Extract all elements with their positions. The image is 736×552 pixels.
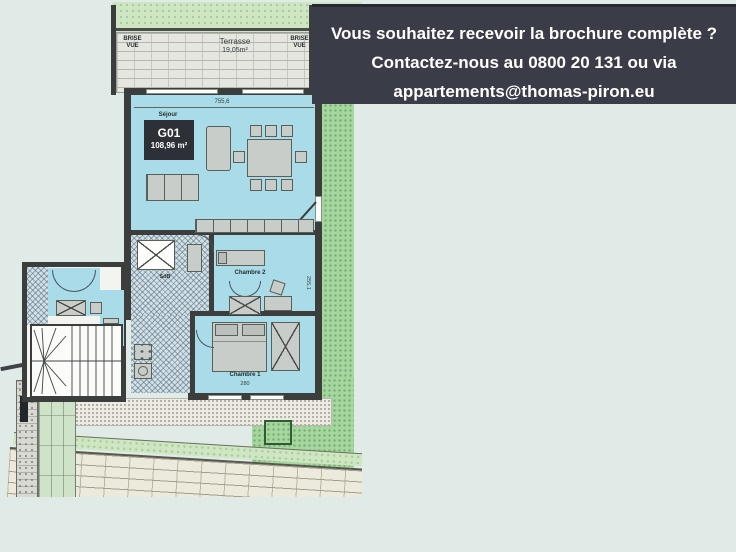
unit-label-box: G01 108,96 m² <box>144 120 194 160</box>
unit-area: 108,96 m² <box>144 140 194 151</box>
pillow-chambre2 <box>218 252 227 264</box>
unit-code: G01 <box>144 127 194 140</box>
brise-vue-post-left <box>111 5 116 95</box>
dining-chair <box>250 179 262 191</box>
sofa <box>146 174 199 201</box>
dining-chair <box>250 125 262 137</box>
site-plan: BRISE VUE BRISE VUE Terrasse 19,05m² <box>0 0 362 497</box>
wall-utility-chambre1 <box>190 311 195 393</box>
contact-banner: Vous souhaitez recevoir la brochure comp… <box>312 4 736 104</box>
banner-email: appartements@thomas-piron.eu <box>312 77 736 106</box>
wardrobe-chambre1 <box>271 322 300 371</box>
terrace-label: Terrasse <box>200 37 270 46</box>
chambre2-height-dim: 255,1 <box>305 276 311 290</box>
pillow-chambre1-right <box>242 324 265 336</box>
desk-chambre2 <box>264 296 292 311</box>
dining-chair <box>295 151 307 163</box>
dining-table <box>247 139 292 177</box>
dimension-line <box>134 107 314 108</box>
dining-chair <box>233 151 245 163</box>
sejour-window-right <box>242 89 304 94</box>
dining-chair <box>281 179 293 191</box>
brise-vue-label-left: BRISE VUE <box>119 36 146 50</box>
terrace-area: 19,05m² <box>200 47 270 54</box>
dining-chair <box>265 179 277 191</box>
entry-mat <box>56 300 86 316</box>
chambre1-width-dim: 280 <box>235 381 255 387</box>
sink-appliance <box>134 363 152 379</box>
brise-vue-label-right: BRISE VUE <box>286 36 313 50</box>
staircase <box>30 324 123 398</box>
chambre1-label: Chambre 1 <box>222 372 268 379</box>
kitchen-counter <box>195 219 314 233</box>
chambre1-window-left <box>208 395 242 400</box>
sejour-window-left <box>146 89 218 94</box>
dining-chair <box>265 125 277 137</box>
dining-chair <box>281 125 293 137</box>
shower <box>137 240 175 270</box>
blanket-line <box>213 341 266 342</box>
garden-planter <box>264 420 292 445</box>
sink-basin <box>138 366 148 376</box>
banner-line-2: Contactez-nous au 0800 20 131 ou via <box>312 48 736 77</box>
armchair <box>206 126 231 171</box>
chambre1-window-right <box>250 395 284 400</box>
entry-cabinet <box>90 302 102 314</box>
sejour-label: Séjour <box>148 112 188 119</box>
hob-appliance <box>134 344 152 360</box>
terrace-railing <box>114 28 314 31</box>
wall-right <box>315 88 322 400</box>
pillow-chambre1-left <box>215 324 238 336</box>
floorplan-advert: BRISE VUE BRISE VUE Terrasse 19,05m² <box>0 0 736 552</box>
banner-line-1: Vous souhaitez recevoir la brochure comp… <box>312 19 736 48</box>
bathroom-label: SdB <box>150 274 180 280</box>
sejour-width-dim: 755,6 <box>200 99 244 105</box>
wardrobe-chambre2 <box>229 296 261 315</box>
annex-corridor <box>27 267 48 325</box>
chambre2-label: Chambre 2 <box>228 270 272 277</box>
sejour-door-east <box>315 196 322 222</box>
